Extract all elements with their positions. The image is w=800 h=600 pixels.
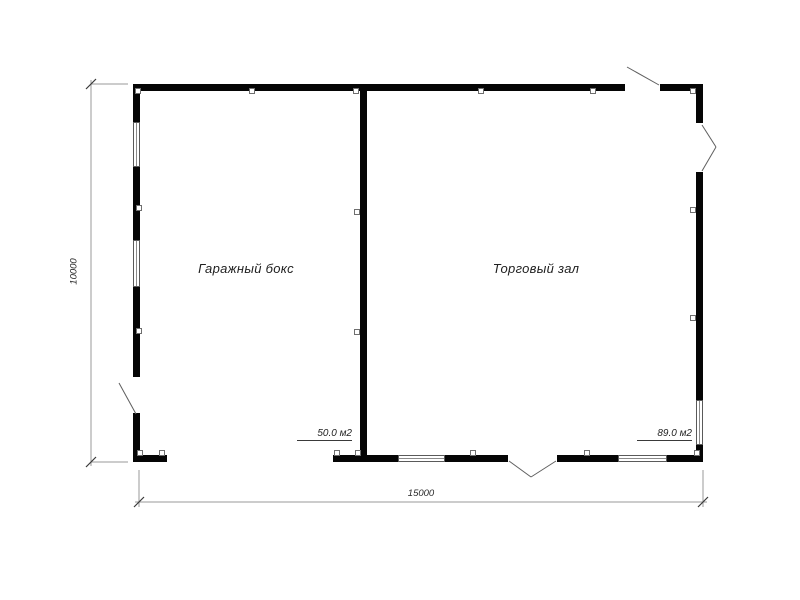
door-leaf-top (627, 67, 659, 85)
room-label-trading-hall: Торговый зал (461, 261, 611, 276)
dimension-width-label: 15000 (391, 488, 451, 499)
room-label-garage: Гаражный бокс (171, 261, 321, 276)
area-label-garage: 50.0 м2 (297, 428, 352, 441)
annotations-layer (0, 0, 800, 600)
door-leaf-right-b (702, 147, 716, 171)
dimension-height-label: 10000 (69, 242, 80, 302)
door-leaf-left (119, 383, 136, 414)
door-leaf-bottom-a (509, 461, 531, 477)
door-leaf-bottom-b (531, 461, 556, 477)
door-leaf-right-a (702, 125, 716, 147)
floor-plan-drawing: Гаражный бокс Торговый зал 50.0 м2 89.0 … (0, 0, 800, 600)
area-label-trading-hall: 89.0 м2 (637, 428, 692, 441)
